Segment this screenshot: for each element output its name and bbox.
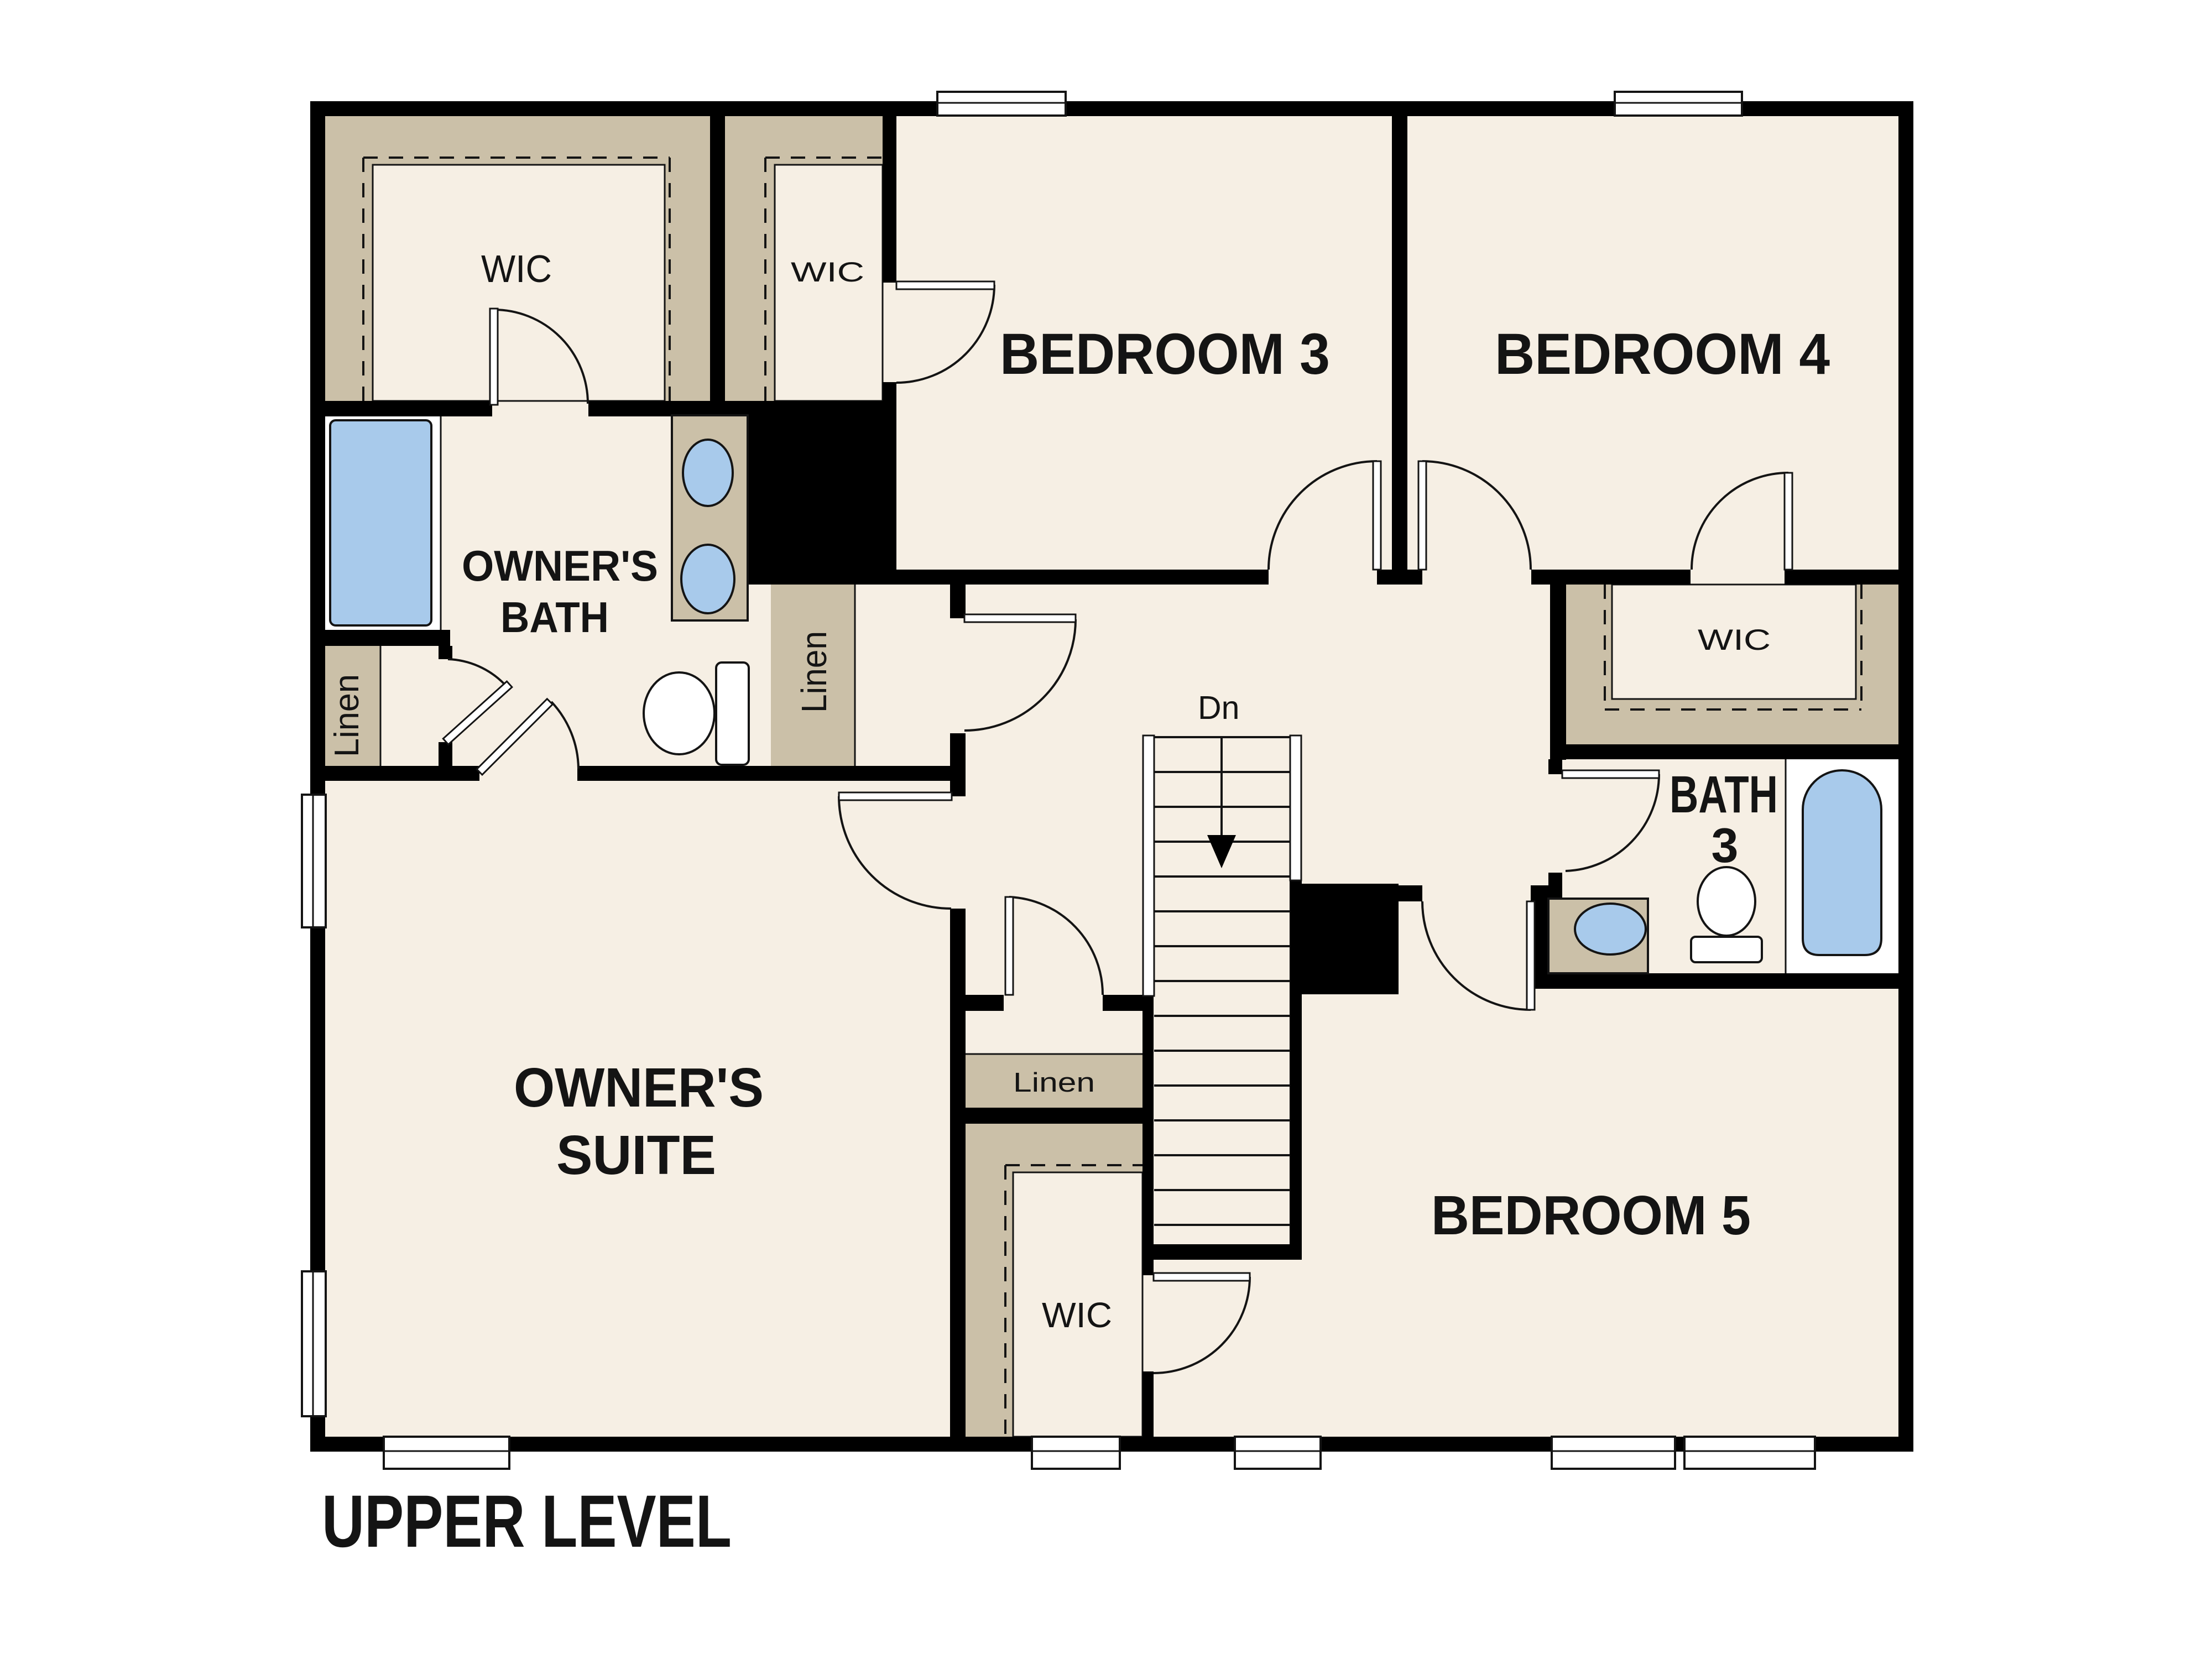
svg-text:WIC: WIC [481,247,552,290]
svg-text:BATH: BATH [500,593,609,641]
svg-text:OWNER'S: OWNER'S [462,541,658,590]
svg-text:WIC: WIC [1042,1295,1112,1335]
svg-text:BATH: BATH [1670,765,1778,824]
svg-text:Linen: Linen [794,631,834,713]
svg-text:BEDROOM 3: BEDROOM 3 [1000,322,1330,387]
svg-text:UPPER LEVEL: UPPER LEVEL [322,1480,732,1563]
svg-text:Linen: Linen [1013,1068,1095,1098]
svg-text:3: 3 [1712,818,1739,873]
svg-text:Linen: Linen [328,674,366,757]
svg-text:OWNER'S: OWNER'S [514,1057,764,1119]
svg-text:SUITE: SUITE [556,1124,716,1186]
svg-text:BEDROOM 4: BEDROOM 4 [1495,322,1830,387]
svg-text:WIC: WIC [791,257,864,288]
svg-text:WIC: WIC [1698,624,1771,656]
svg-text:BEDROOM 5: BEDROOM 5 [1431,1185,1751,1246]
svg-text:Dn: Dn [1198,690,1239,726]
